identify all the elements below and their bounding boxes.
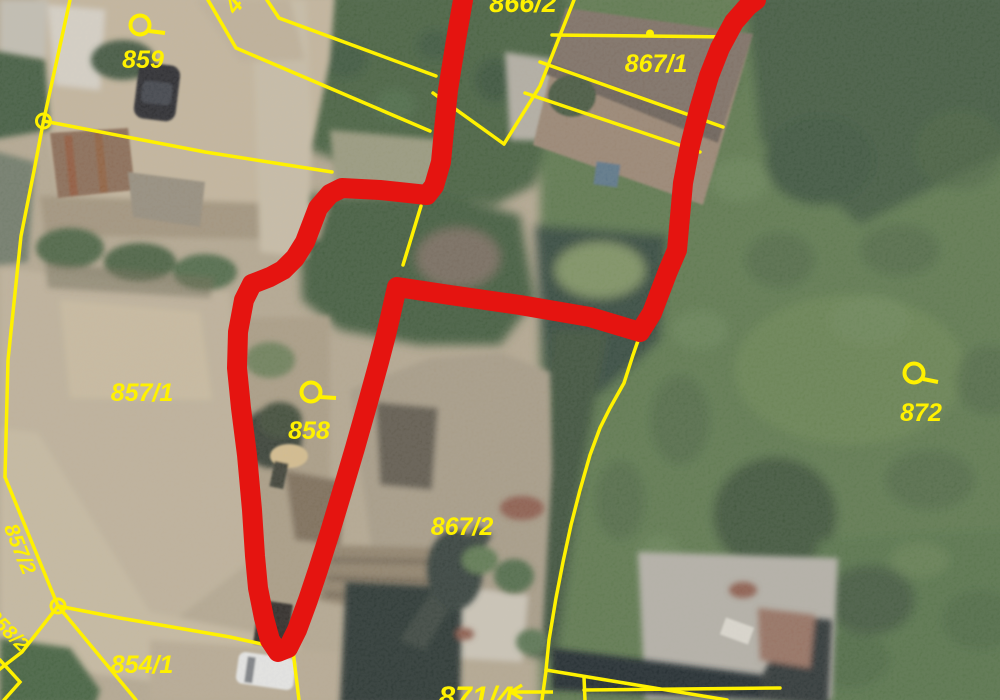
svg-text:858: 858 (288, 417, 330, 445)
svg-text:871/4: 871/4 (438, 681, 513, 700)
svg-text:866/2: 866/2 (489, 0, 557, 18)
svg-text:872: 872 (900, 399, 942, 427)
svg-text:867/1: 867/1 (625, 50, 688, 78)
svg-text:857/1: 857/1 (111, 379, 174, 407)
svg-text:867/2: 867/2 (431, 513, 494, 541)
svg-text:854/1: 854/1 (111, 651, 174, 679)
svg-text:859: 859 (122, 46, 164, 74)
